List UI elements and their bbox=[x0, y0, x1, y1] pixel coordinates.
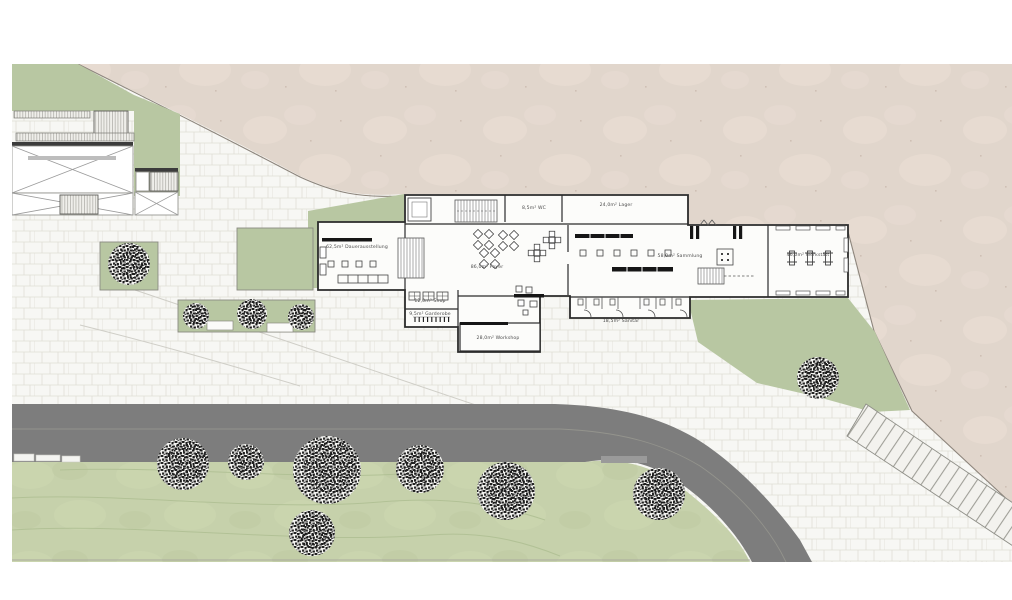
room-label-sanitär: 18,5m² Sanitär bbox=[603, 318, 640, 324]
curb-tile bbox=[36, 455, 60, 461]
bus-stop-strip bbox=[601, 456, 647, 463]
curb-tile bbox=[62, 456, 80, 462]
tree bbox=[396, 445, 444, 493]
tree bbox=[293, 436, 361, 504]
room-label-workshop: 28,0m² Workshop bbox=[477, 335, 520, 341]
display-case bbox=[575, 234, 633, 238]
room-label-shop: 12,0m² Shop bbox=[414, 298, 445, 304]
room-label-wc: 8,5m² WC bbox=[522, 205, 546, 211]
tree bbox=[237, 299, 267, 329]
tree bbox=[797, 357, 839, 399]
lawn bbox=[12, 461, 750, 562]
stair bbox=[150, 172, 178, 191]
tree bbox=[289, 510, 335, 556]
room-label-dauerausstellung: 62,5m² Dauerausstellung bbox=[326, 244, 388, 250]
elevator bbox=[408, 198, 431, 221]
tree bbox=[633, 468, 685, 520]
annex-room bbox=[136, 172, 149, 191]
display-case bbox=[322, 238, 372, 242]
curb-tile bbox=[14, 454, 34, 461]
site-plan: 62,5m² Dauerausstellung8,5m² WC24,0m² La… bbox=[0, 0, 1012, 600]
stair bbox=[455, 200, 497, 222]
tree bbox=[477, 462, 535, 520]
courtyard-planter bbox=[237, 228, 313, 290]
room-label-garderobe: 9,5m² Garderobe bbox=[409, 311, 451, 317]
stair bbox=[60, 195, 98, 214]
roof-ridge bbox=[28, 156, 116, 160]
room-label-sammlung: 58,0m² Sammlung bbox=[658, 253, 703, 259]
tree bbox=[288, 304, 314, 330]
deck-strip bbox=[16, 133, 134, 141]
deck-strip bbox=[14, 111, 90, 118]
wall-band bbox=[12, 142, 133, 146]
bench bbox=[267, 323, 293, 332]
wall-band bbox=[135, 168, 178, 172]
tree bbox=[228, 444, 264, 480]
room-label-foyer: 86,0m² Foyer bbox=[471, 264, 504, 270]
stair bbox=[398, 238, 424, 278]
room-label-lager: 24,0m² Lager bbox=[600, 202, 633, 208]
tree bbox=[108, 243, 150, 285]
tree bbox=[157, 438, 209, 490]
room-label-werkstatt: 46,0m² Werkstatt bbox=[787, 252, 830, 258]
bench bbox=[207, 321, 233, 330]
tree bbox=[183, 303, 209, 329]
